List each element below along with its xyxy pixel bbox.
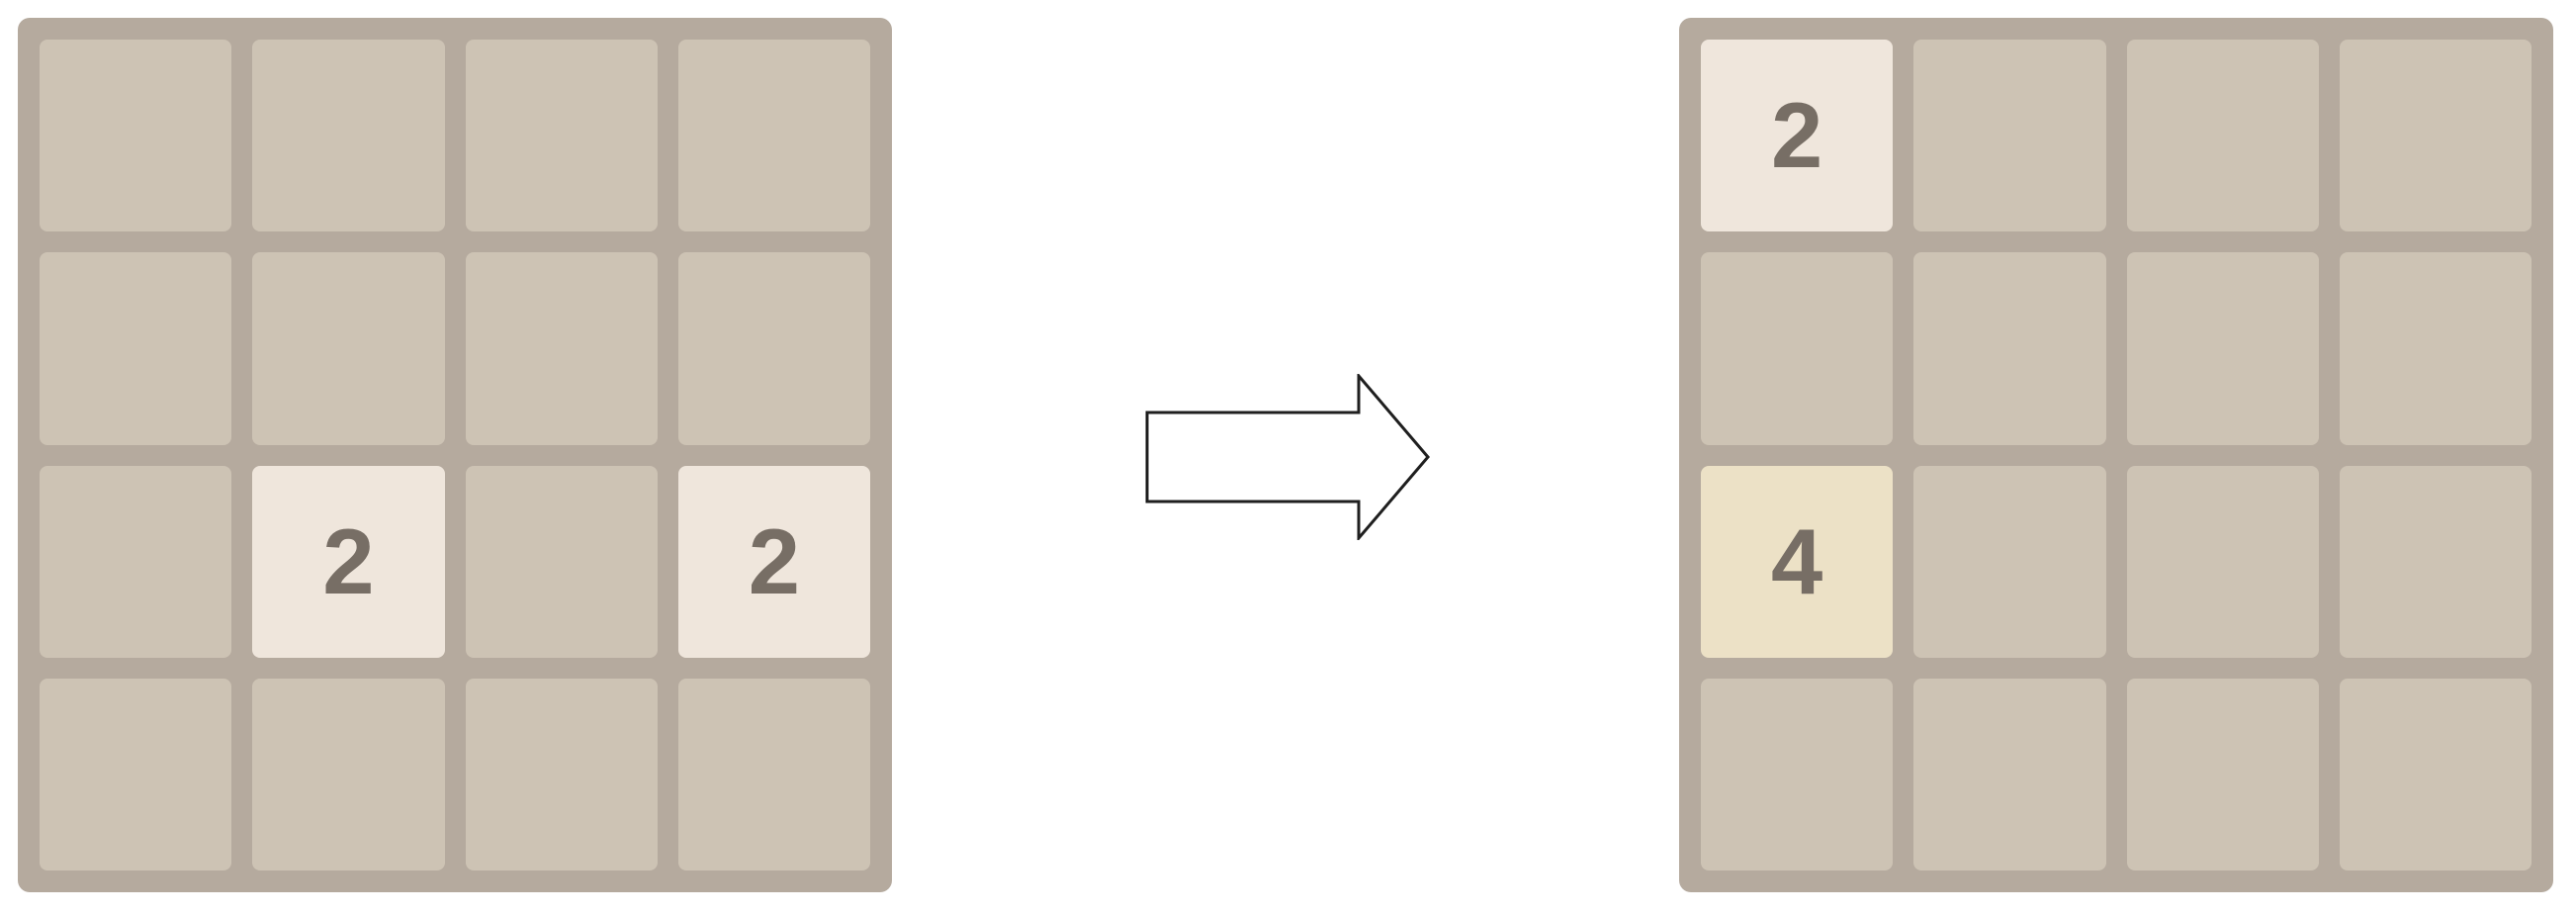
right-arrow-shape	[1147, 376, 1428, 538]
tile-2: 2	[1701, 40, 1893, 231]
empty-cell	[678, 679, 870, 870]
right-arrow-icon	[1145, 374, 1430, 540]
empty-cell	[1913, 679, 2105, 870]
tile-4: 4	[1701, 466, 1893, 658]
tile-2: 2	[252, 466, 444, 658]
board-after: 24	[1679, 18, 2553, 892]
empty-cell	[2127, 252, 2319, 444]
empty-cell	[2340, 466, 2532, 658]
board-before: 22	[18, 18, 892, 892]
empty-cell	[252, 252, 444, 444]
empty-cell	[466, 40, 658, 231]
empty-cell	[678, 40, 870, 231]
empty-cell	[40, 252, 231, 444]
empty-cell	[40, 466, 231, 658]
empty-cell	[40, 679, 231, 870]
empty-cell	[466, 679, 658, 870]
empty-cell	[2127, 466, 2319, 658]
empty-cell	[2340, 252, 2532, 444]
empty-cell	[2340, 679, 2532, 870]
move-illustration: 22 24	[0, 0, 2576, 915]
empty-cell	[1913, 40, 2105, 231]
empty-cell	[2127, 40, 2319, 231]
empty-cell	[466, 252, 658, 444]
empty-cell	[252, 679, 444, 870]
empty-cell	[466, 466, 658, 658]
empty-cell	[1701, 679, 1893, 870]
empty-cell	[678, 252, 870, 444]
empty-cell	[1913, 252, 2105, 444]
tile-2: 2	[678, 466, 870, 658]
empty-cell	[2340, 40, 2532, 231]
empty-cell	[1913, 466, 2105, 658]
empty-cell	[2127, 679, 2319, 870]
empty-cell	[1701, 252, 1893, 444]
empty-cell	[252, 40, 444, 231]
empty-cell	[40, 40, 231, 231]
